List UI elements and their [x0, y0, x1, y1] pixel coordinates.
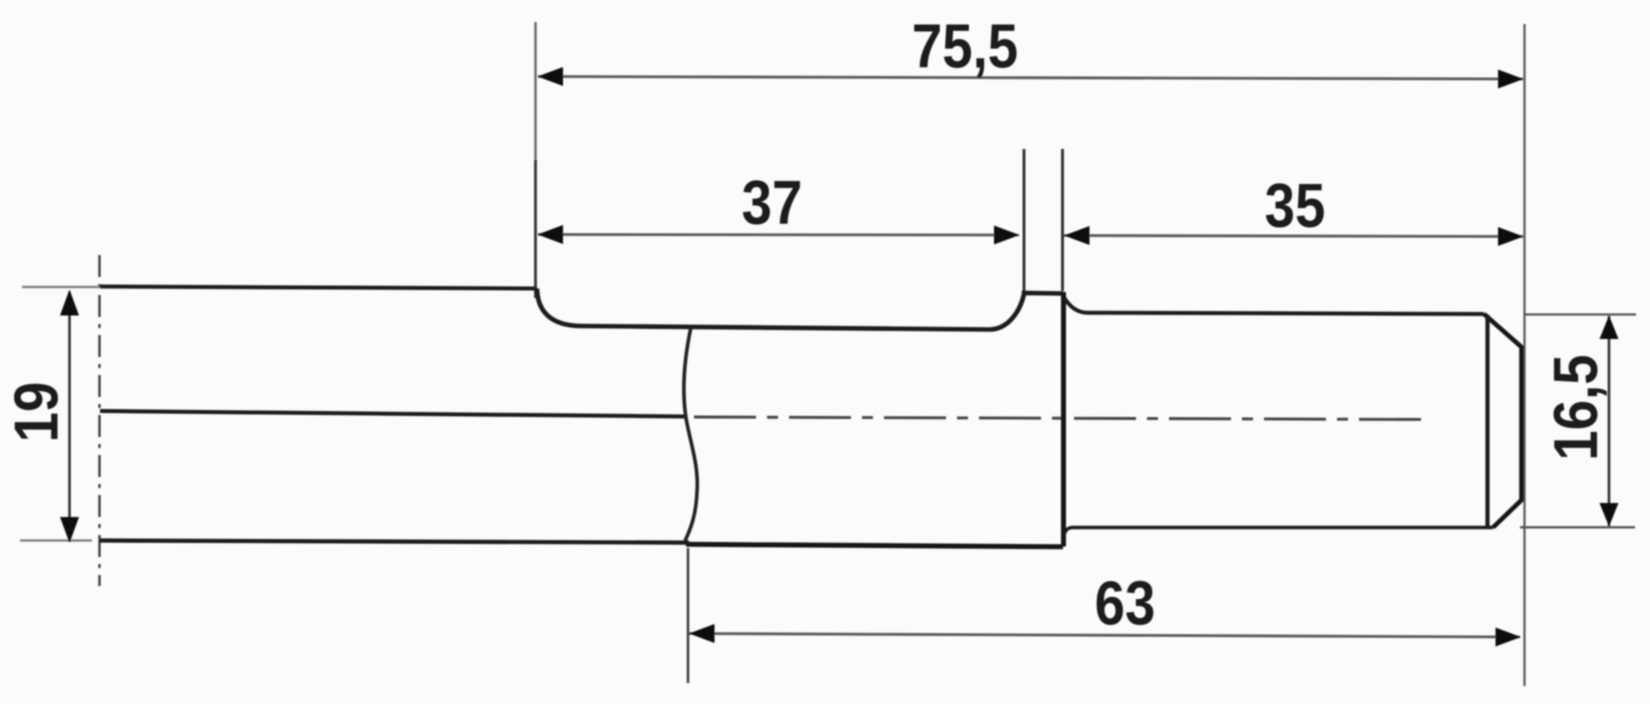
svg-text:16,5: 16,5: [1542, 354, 1611, 460]
svg-text:35: 35: [1265, 172, 1326, 241]
svg-text:37: 37: [742, 169, 803, 238]
svg-text:75,5: 75,5: [912, 12, 1018, 81]
svg-text:63: 63: [1095, 569, 1156, 638]
svg-text:19: 19: [2, 382, 71, 443]
